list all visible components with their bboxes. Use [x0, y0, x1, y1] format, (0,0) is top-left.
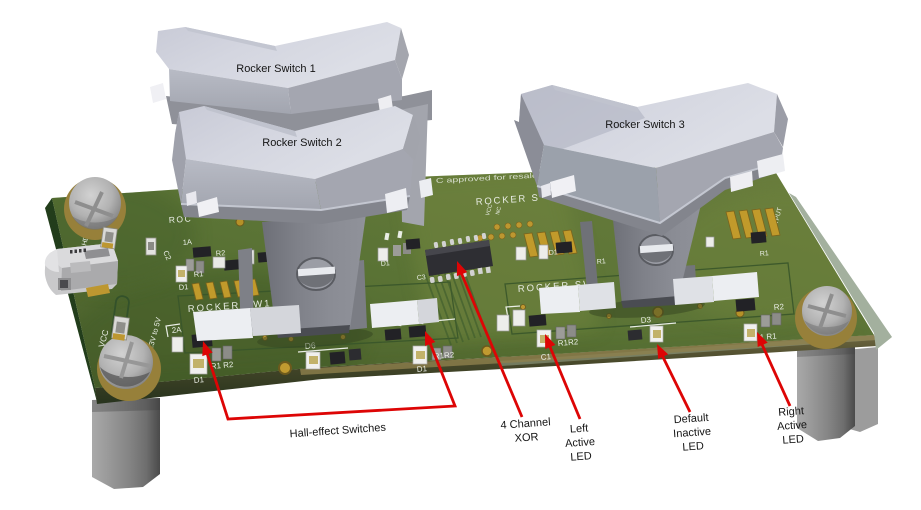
svg-text:D1: D1: [416, 364, 428, 374]
svg-text:2A: 2A: [171, 325, 182, 335]
svg-text:Rocker Switch 1: Rocker Switch 1: [236, 63, 315, 75]
svg-text:1A: 1A: [182, 237, 192, 247]
svg-text:Active: Active: [777, 419, 808, 433]
svg-text:D1: D1: [381, 260, 391, 268]
svg-text:Left: Left: [570, 422, 589, 435]
svg-text:Rocker Switch 2: Rocker Switch 2: [262, 137, 341, 149]
svg-text:D1: D1: [193, 375, 205, 385]
svg-text:Default: Default: [673, 412, 709, 426]
svg-text:R2: R2: [773, 302, 785, 312]
svg-text:LED: LED: [682, 440, 704, 453]
svg-text:R1R2: R1R2: [557, 337, 579, 348]
svg-text:Rocker Switch 3: Rocker Switch 3: [605, 119, 684, 131]
svg-text:LED: LED: [782, 433, 804, 446]
svg-text:C3: C3: [417, 274, 427, 282]
svg-text:D1: D1: [549, 249, 559, 257]
svg-text:Right: Right: [778, 405, 804, 419]
svg-text:D1: D1: [178, 282, 188, 292]
svg-text:LED: LED: [570, 450, 592, 463]
svg-text:R1: R1: [193, 269, 203, 279]
svg-text:R1: R1: [760, 250, 770, 258]
svg-text:C1: C1: [540, 352, 552, 362]
svg-text:Active: Active: [565, 436, 596, 450]
svg-text:R2: R2: [215, 248, 225, 258]
svg-text:XOR: XOR: [514, 431, 539, 445]
svg-text:R1: R1: [597, 258, 607, 266]
